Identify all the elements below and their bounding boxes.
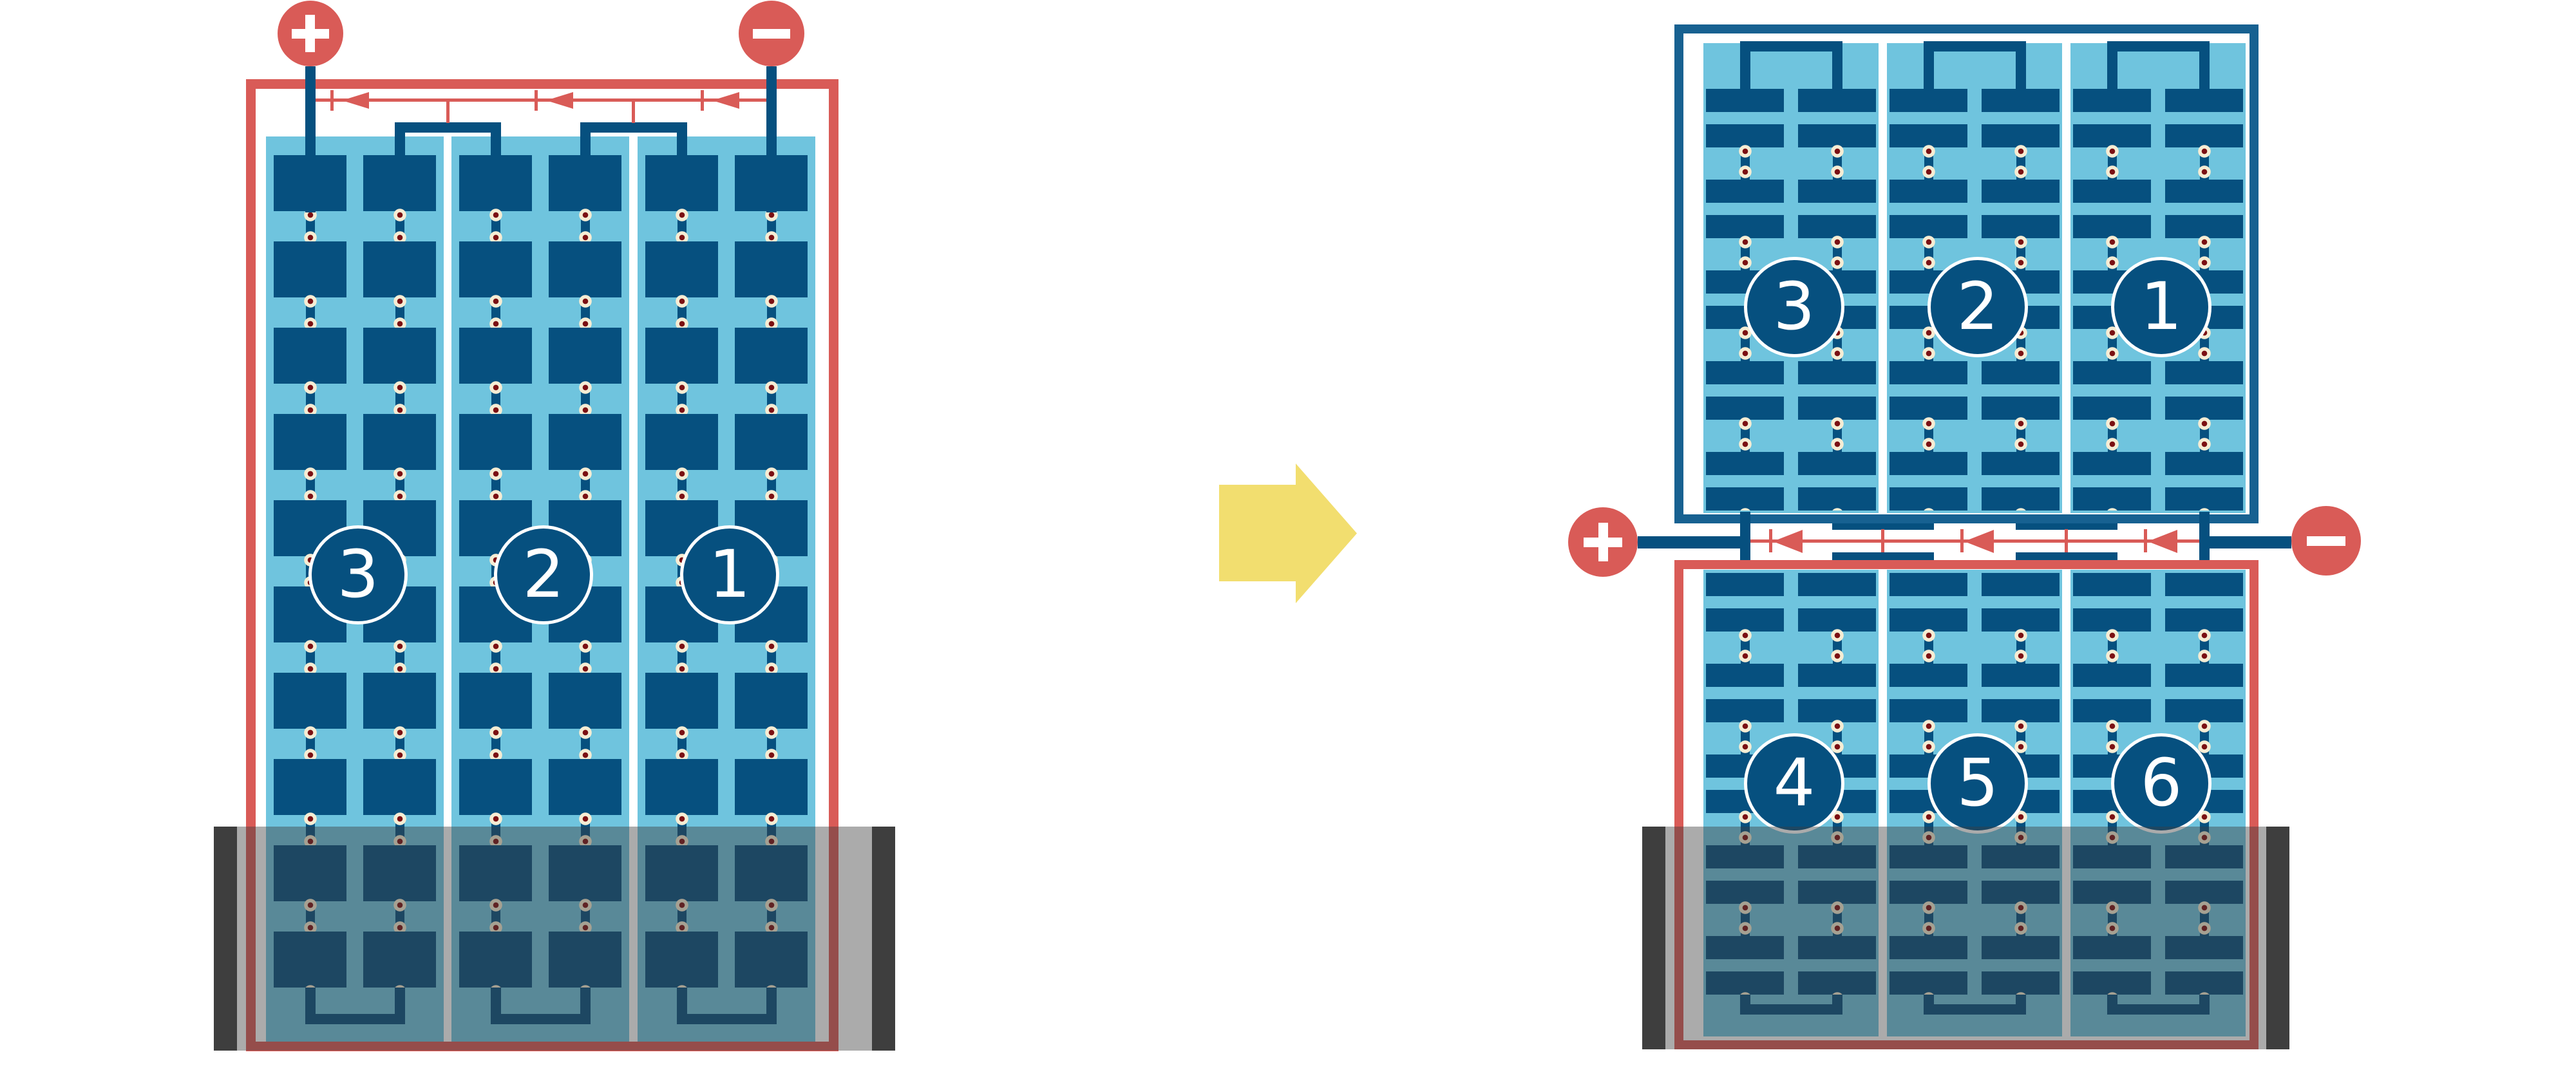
holder-side-bar — [2266, 827, 2289, 1049]
bridge-connector — [2016, 552, 2117, 560]
current-arrowhead — [1964, 530, 1994, 553]
holder-side-bar — [214, 827, 237, 1051]
plus-icon — [1598, 523, 1608, 561]
minus-icon — [2307, 536, 2345, 546]
cell-number: 6 — [2141, 751, 2183, 816]
cell-number-badge: 6 — [2111, 733, 2211, 834]
u-connector-leg — [2199, 52, 2210, 91]
positive-terminal — [1568, 507, 1638, 577]
cell-number-badge: 3 — [308, 525, 408, 624]
negative-lead — [2204, 536, 2291, 548]
cell-number: 1 — [709, 542, 751, 608]
current-arrowhead — [342, 92, 369, 109]
holder-side-bar — [1642, 827, 1665, 1049]
bridge-leg — [491, 133, 501, 167]
diagram-canvas: 3 2 1 — [0, 0, 2576, 1068]
current-tick — [701, 90, 704, 111]
current-arrowhead — [712, 92, 739, 109]
current-tick — [1769, 529, 1772, 552]
cell-number: 4 — [1774, 751, 1815, 816]
u-connector — [2107, 41, 2210, 52]
u-connector-leg — [2016, 52, 2026, 91]
current-tick — [1960, 529, 1964, 552]
current-arrowhead — [1773, 530, 1803, 553]
current-tick — [535, 90, 538, 111]
current-arrowhead — [2148, 530, 2177, 553]
positive-lead — [1638, 536, 1745, 548]
bridge-leg — [677, 133, 687, 167]
holder-side-bar — [872, 827, 895, 1051]
plus-icon — [305, 15, 315, 52]
current-tick — [2144, 529, 2147, 552]
u-connector-leg — [1832, 52, 1842, 91]
u-connector-leg — [1924, 52, 1934, 91]
cell-number: 2 — [1957, 274, 1999, 340]
u-connector — [1740, 41, 1842, 52]
u-connector — [1924, 41, 2026, 52]
minus-icon — [753, 29, 790, 39]
bridge-connector — [395, 122, 501, 133]
current-tick — [330, 90, 334, 111]
bridge-connector — [1832, 552, 1934, 560]
current-flow-line — [316, 98, 766, 102]
positive-terminal — [278, 1, 343, 66]
cell-number-badge: 1 — [2111, 257, 2211, 357]
bridge-connector — [580, 122, 687, 133]
holder-overlay — [214, 827, 895, 1051]
arrow-body — [1219, 485, 1296, 581]
cell-number-badge: 2 — [494, 525, 593, 624]
current-arrowhead — [546, 92, 573, 109]
arrow-head — [1296, 464, 1357, 603]
negative-terminal — [739, 1, 804, 66]
cell-number: 3 — [1774, 274, 1815, 340]
bridge-contact-tick — [2065, 529, 2068, 552]
cell-number: 2 — [523, 542, 565, 608]
positive-post — [305, 66, 316, 212]
u-connector-leg — [2107, 52, 2117, 91]
negative-terminal — [2291, 506, 2361, 576]
bridge-contact-tick — [1881, 529, 1884, 552]
cell-number: 1 — [2141, 274, 2183, 340]
bridge-leg — [580, 133, 591, 167]
bridge-leg — [395, 133, 405, 167]
cell-number-badge: 1 — [680, 525, 779, 624]
bridge-contact-stub — [632, 101, 635, 123]
cell-number-badge: 4 — [1744, 733, 1844, 834]
negative-post — [766, 66, 777, 212]
cell-number-badge: 2 — [1927, 257, 2028, 357]
cell-number-badge: 5 — [1927, 733, 2028, 834]
cell-number-badge: 3 — [1744, 257, 1844, 357]
cell-number: 5 — [1957, 751, 1999, 816]
cell-number: 3 — [337, 542, 379, 608]
u-connector-leg — [1740, 52, 1750, 91]
holder-overlay — [1642, 827, 2289, 1049]
bridge-contact-stub — [446, 101, 450, 123]
